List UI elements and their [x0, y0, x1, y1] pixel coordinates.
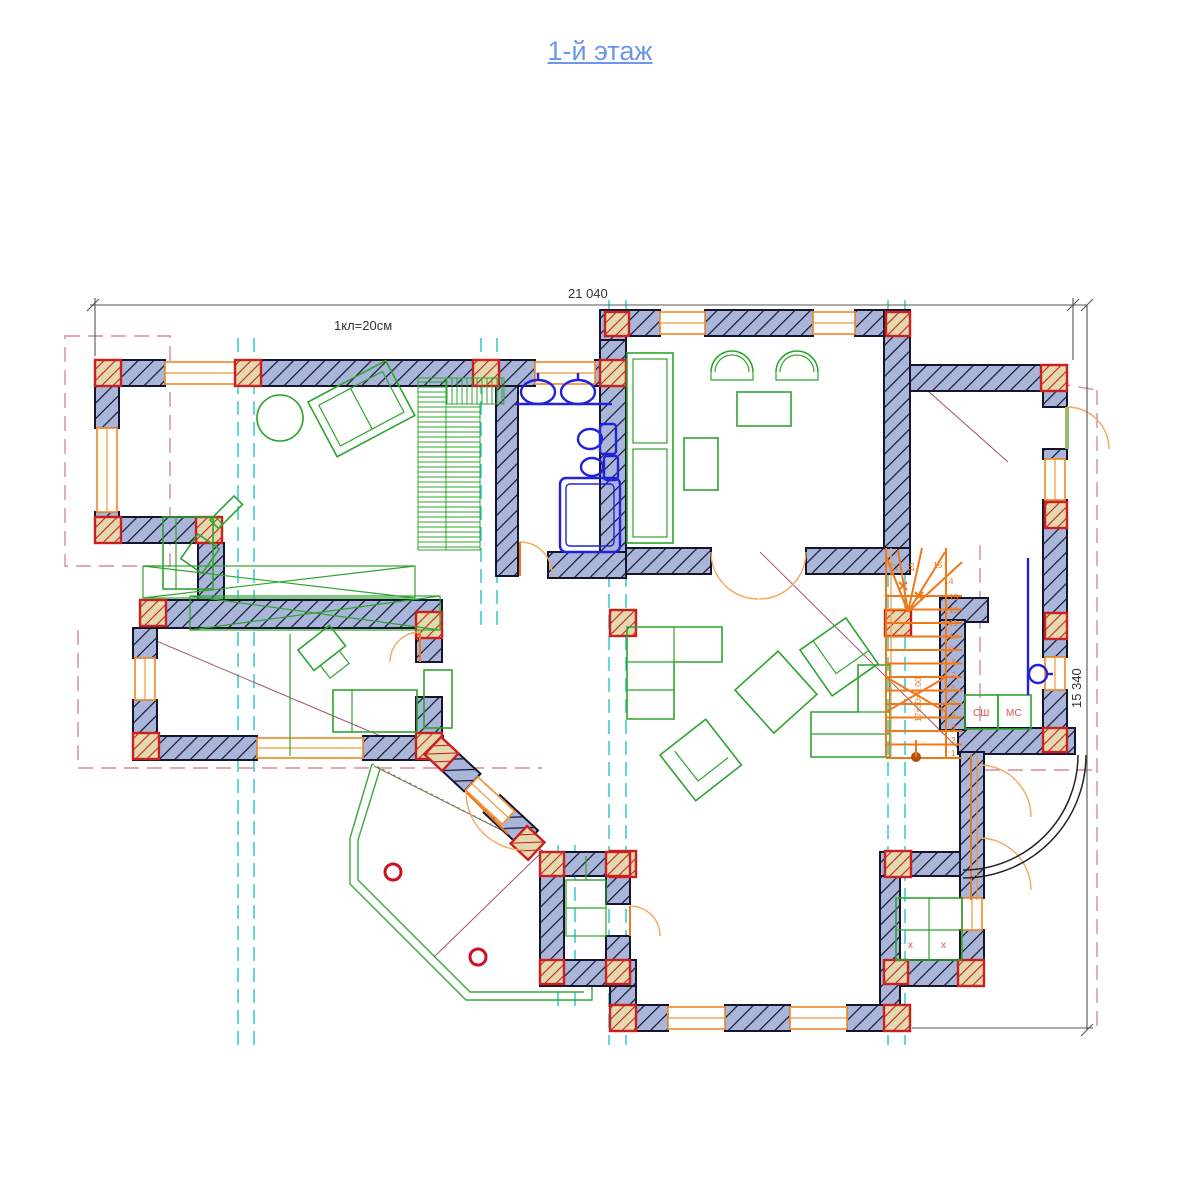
arch-chair	[776, 351, 818, 380]
stair-number: 17	[889, 562, 899, 572]
door-pantry	[630, 906, 660, 936]
window	[668, 1007, 725, 1029]
columns	[95, 312, 1067, 1031]
terrace-column-round	[470, 949, 486, 965]
door-living-double	[711, 552, 806, 599]
stair-number: 11	[949, 618, 958, 628]
closet-x-label: х	[908, 940, 913, 951]
desk-chair	[298, 625, 355, 683]
stair-number: 8	[951, 657, 956, 667]
windows	[97, 312, 1065, 1029]
corner-sofa	[627, 627, 722, 719]
stair-number: 14	[944, 576, 954, 586]
walls	[95, 310, 1075, 1031]
window	[165, 362, 235, 384]
bed	[333, 690, 417, 732]
stair-number: 1	[951, 748, 956, 758]
window	[257, 738, 363, 758]
stair-number: 2	[951, 735, 956, 745]
wardrobe-hatch	[446, 404, 480, 550]
stair-number: 10	[949, 631, 959, 641]
stair-number: 7	[951, 670, 956, 680]
window	[813, 312, 855, 334]
dim-width-label: 21 040	[568, 286, 608, 301]
table	[735, 651, 817, 733]
floor-plan-drawing: 17х30=3.00 1 2 3 4 5 6 7 8 9 10 11 12 13…	[0, 0, 1200, 1200]
closet-boxes	[896, 898, 962, 960]
coffee-table	[737, 392, 791, 426]
stair-number: 5	[951, 696, 956, 706]
chair	[684, 438, 718, 490]
scale-note-label: 1кл=20см	[334, 318, 392, 333]
window	[790, 1007, 847, 1029]
window	[1045, 459, 1065, 500]
window	[135, 658, 155, 700]
stair-number: 12	[949, 605, 959, 615]
door-entrance	[1067, 407, 1109, 449]
stair-closet-label: МС	[1006, 708, 1022, 719]
terrace-column-round	[385, 864, 401, 880]
stair-number: 6	[951, 683, 956, 693]
stair-number: 15	[933, 560, 943, 570]
stair-number: 3	[951, 722, 956, 732]
wardrobe-hatch	[446, 378, 504, 404]
wardrobe-hatch	[418, 378, 446, 550]
closet-x-label: х	[941, 940, 946, 951]
cabinet	[627, 353, 673, 543]
plumbing	[515, 373, 1053, 695]
window	[97, 428, 117, 512]
dim-height-label: 15 340	[1069, 668, 1084, 708]
round-table	[257, 395, 303, 441]
stair-closet-label: СШ	[973, 708, 989, 719]
corner-sofa	[811, 665, 890, 757]
armchair	[660, 719, 741, 800]
stair-note: 17х30=3.00	[913, 677, 923, 722]
stair-number: 4	[951, 709, 956, 719]
window	[962, 898, 982, 930]
window	[660, 312, 705, 334]
arch-chair	[711, 351, 753, 380]
stair-number: 16	[906, 562, 916, 572]
stair-number: 9	[949, 644, 954, 654]
stair-number: 13	[949, 592, 959, 602]
storage-crossed	[143, 566, 415, 598]
